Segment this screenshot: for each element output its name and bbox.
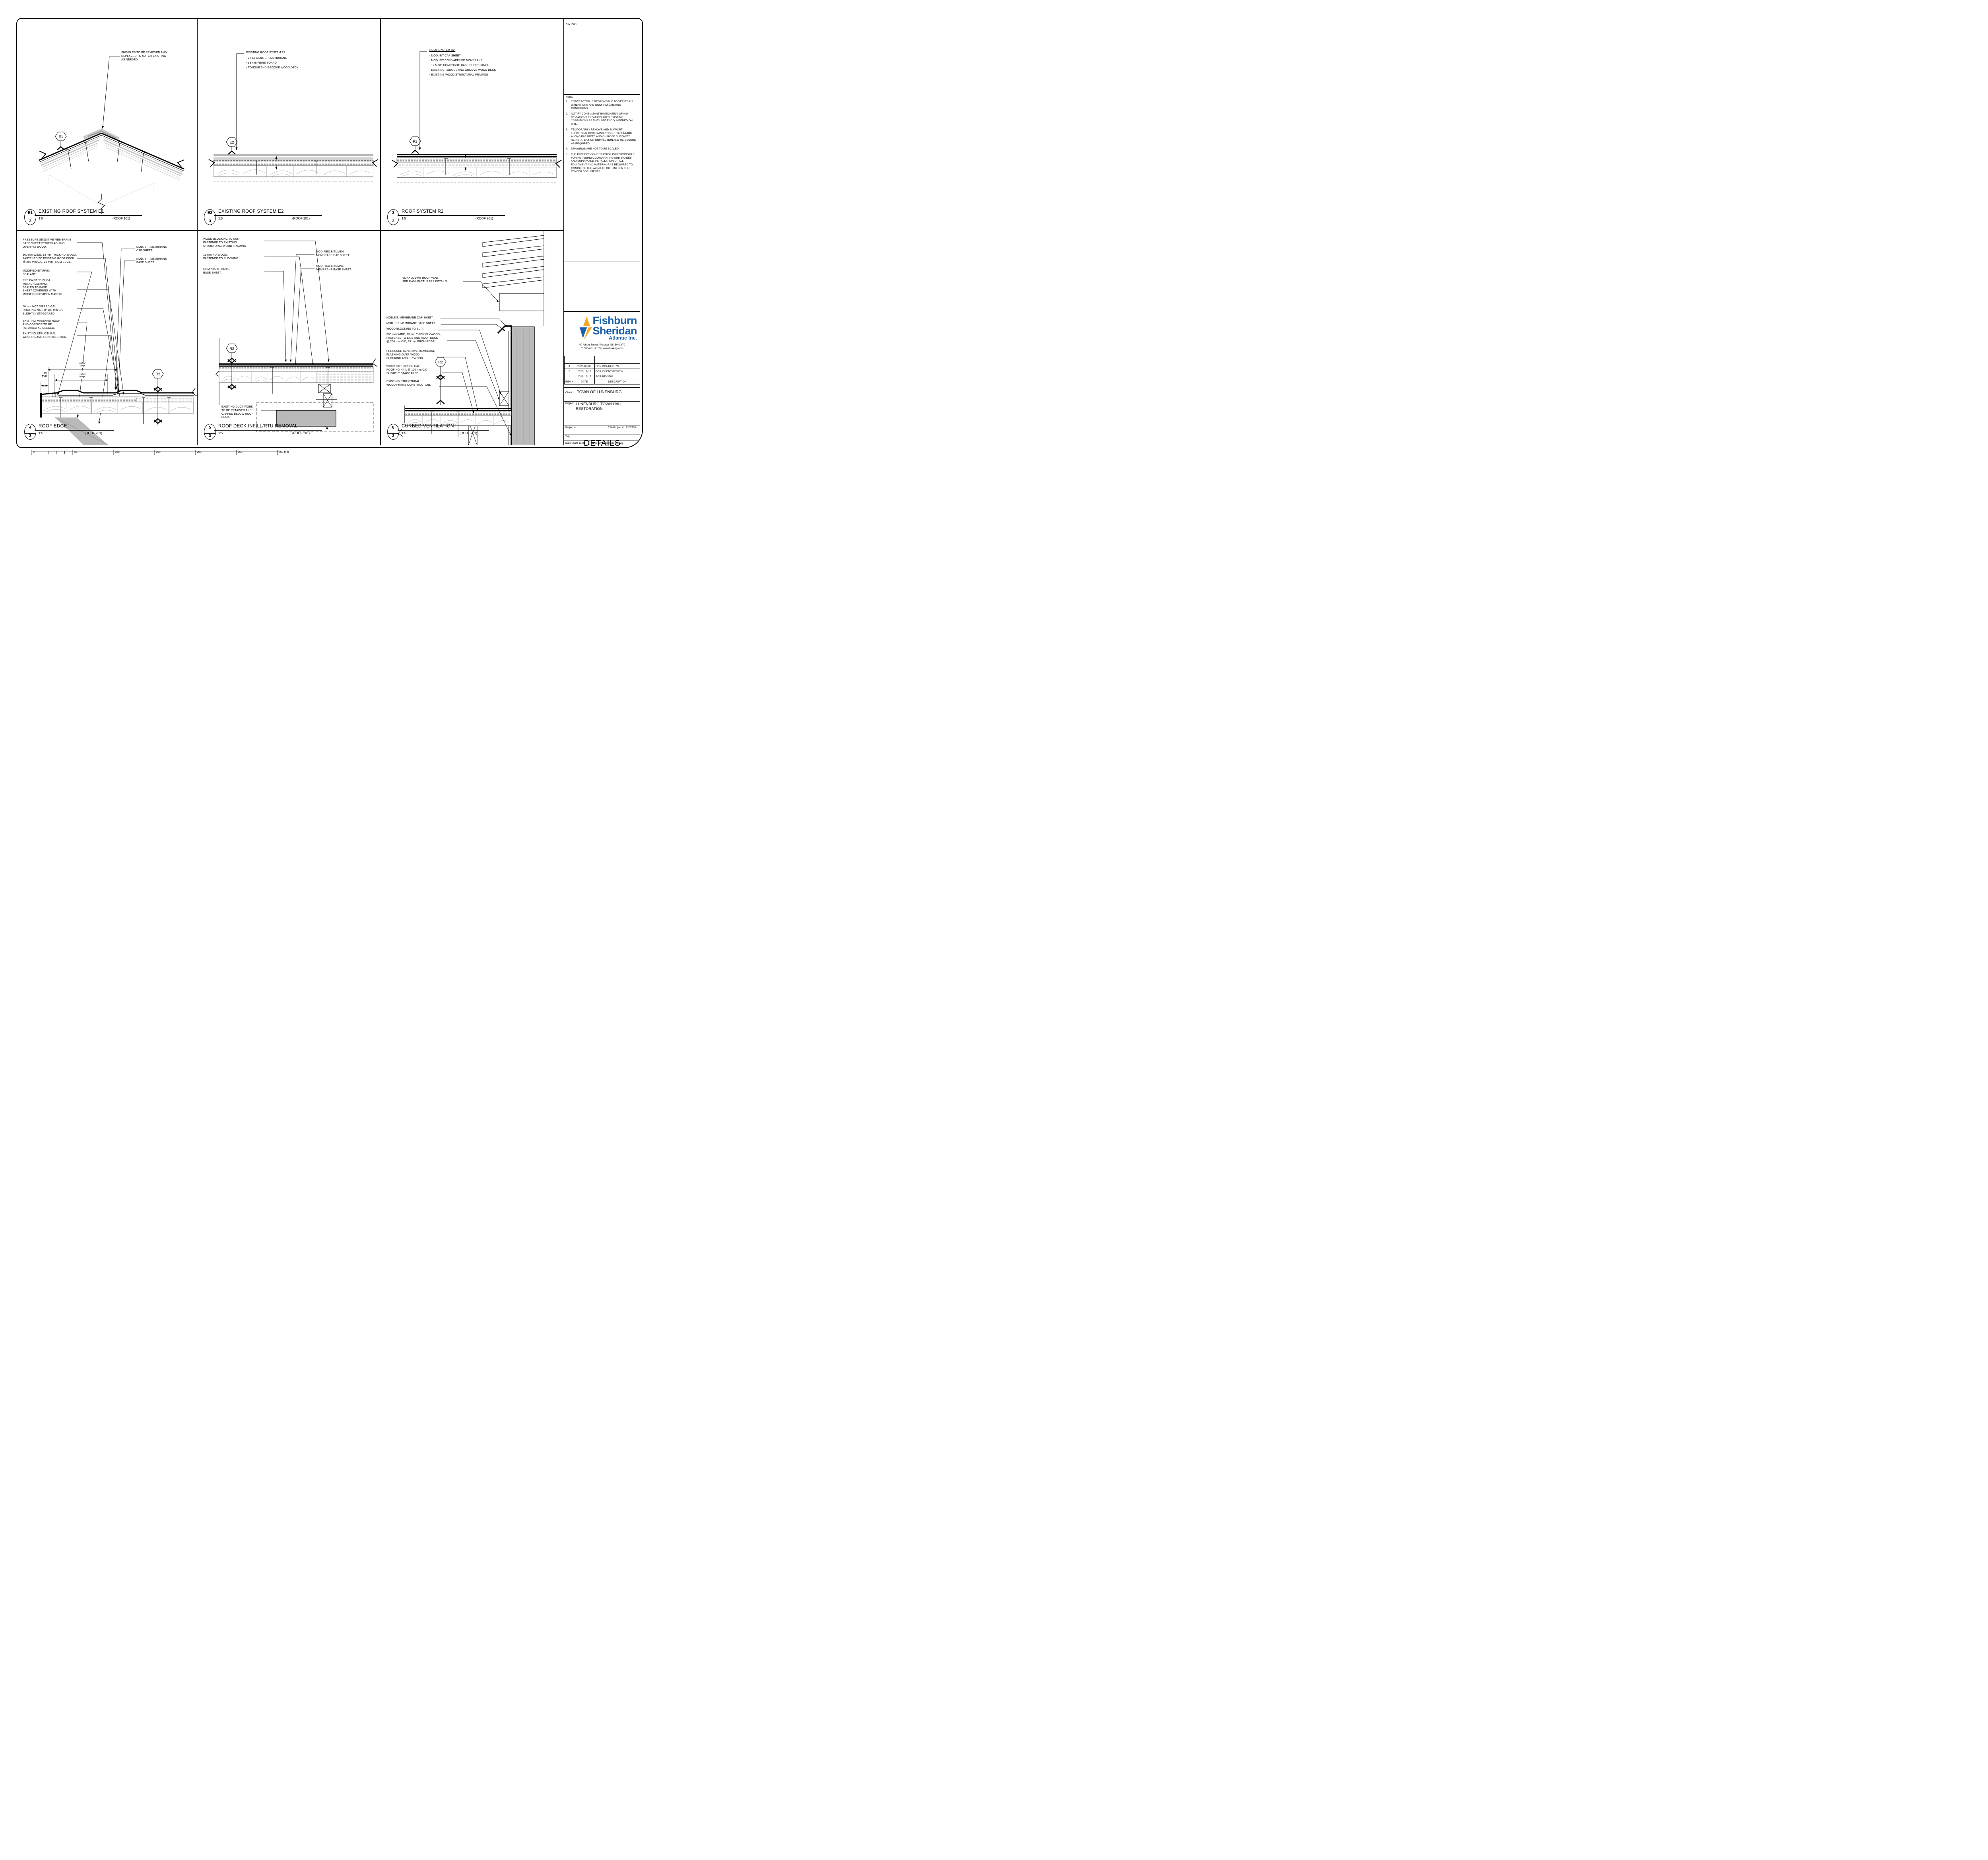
logo-word-3: Atlantic Inc. [592, 336, 637, 341]
rev-num: 2 [565, 369, 574, 374]
callout: MOD. BIT. MEMBRANE BASE SHEET. [386, 322, 442, 326]
callout: WOOD BLOCKING TO SUIT. [386, 328, 438, 331]
detail-ref: (ROOF 201) [476, 217, 493, 220]
detail-drawing-e2: E2 [197, 19, 380, 231]
fsa-project-label: FSA Project #: [608, 426, 624, 429]
callout-duct: EXISTING DUCT WORK TO BE RETAINED AND CA… [221, 406, 269, 419]
callout: MODIFIED BITUMNE MEMBRANE BASE SHEET. [316, 265, 368, 272]
scale-tick-label: 250 [238, 451, 243, 454]
detail-name: ROOF SYSTEM R2 [398, 208, 505, 215]
firm-address: 40 Albert Street, Windsor NS B0N 2T0 [564, 343, 640, 347]
drawing-sheet: E1 SHINGLES TO BE REMOVED AND REPLACED T… [0, 0, 658, 465]
detail-scale: 1:5 [39, 217, 43, 220]
callout: 300 mm WIDE, 13 mm THICK PLYWOOD, FASTEN… [386, 333, 447, 344]
callout: 19 mm PLYWOOD, FASTENED TO BLOCKING. [203, 254, 263, 261]
detail-panel-infill: R2 WOOD BLOCKING TO SUIT, FASTENED TO EX… [197, 231, 380, 445]
callout-r2-item: - 12.5 mm COMPOSITE BASE SHEET PANEL. [429, 64, 525, 68]
scale-tick-label: 150 [156, 451, 161, 454]
rev-date: 2023-12-15 [574, 374, 595, 379]
tag-r2: R2 [410, 137, 421, 153]
key-plan-box: Key Plan: [564, 19, 640, 95]
callout: MODIFIED BITUMEN MEMBRANE CAP SHEET. [316, 250, 368, 258]
callout: PRESSURE SENSITIVE MEMBRANE BASE SHEET S… [23, 239, 77, 249]
callout-shingles: SHINGLES TO BE REMOVED AND REPLACED TO M… [121, 51, 193, 62]
detail-title-roof-edge: 4 3 ROOF EDGE 1:5 (ROOF 201) [24, 423, 114, 440]
callout: 50 mm HOT DIPPED GAL. ROOFING NAIL @ 100… [386, 365, 442, 375]
callout-vent: VMAX 201-MB ROOF VENT. SEE MANUFACTURERS… [402, 277, 462, 284]
rev-date: 2023-12-19 [574, 369, 595, 374]
detail-ref: (ROOF 201) [292, 217, 310, 220]
rev-num: 3 [565, 364, 574, 369]
client-label: Client: [565, 391, 573, 394]
svg-text:E1: E1 [58, 135, 63, 139]
callout: 50 mm HOT DIPPED GAL. ROOFING NAIL @ 100… [23, 305, 77, 316]
callout: 300 mm WIDE, 13 mm THICK PLYWOOD, FASTEN… [23, 254, 78, 264]
date-cell: Date: 2023-11-28 [564, 441, 590, 445]
detail-panel-e2: E2 EXISTING ROOF SYSTEM E2: - 2-PLY MOD.… [197, 19, 380, 231]
detail-scale: 1:5 [402, 217, 406, 220]
callout-r2-item: - MOD. BIT CAP SHEET [429, 54, 525, 58]
dim-300: ±300 TYP. [72, 362, 93, 368]
detail-name: ROOF EDGE [35, 423, 114, 430]
tag-e2: E2 [226, 138, 237, 154]
rev-desc: FOR 99% REVIEW [595, 364, 640, 369]
detail-scale: 1:5 [402, 431, 406, 435]
svg-text:R2: R2 [155, 372, 160, 376]
detail-name: EXISTING ROOF SYSTEM E1 [35, 208, 142, 215]
svg-text:R2: R2 [413, 140, 417, 144]
svg-text:E2: E2 [229, 140, 234, 144]
project-number-label: Project #: [565, 426, 576, 429]
callout-e2-item: - 13 mm FIBRE BOARD [246, 62, 338, 65]
callout-r2-item: - EXISTING WOOD STRUCTURAL FRAMING [429, 74, 525, 77]
callout: EXISTING MANSARD ROOF AND CORNICE TO BE … [23, 320, 77, 330]
detail-name: EXISTING ROOF SYSTEM E2 [214, 208, 322, 215]
detail-scale: 1:5 [39, 431, 43, 435]
detail-panel-r2: R2 ROOF SYSTEM R2: - MOD. BIT CAP SHEET … [380, 19, 563, 231]
title-label: Title: [565, 435, 571, 438]
detail-ref: (ROOF 101) [113, 217, 130, 220]
detail-title-vent: 6 3 CURBED VENTILATION 1:5 (ROOF 201) [387, 423, 489, 440]
file-name-cell: 22057DA-Drawings-01.dwg [590, 442, 625, 445]
scale-tick-label: 300 mm [279, 451, 289, 454]
note-item: 1. CONTRACTOR IS RESPONSIBLE TO VERIFY A… [566, 100, 639, 111]
callout: PRE PAINTED 22 GA. METAL FLASHING, SEALE… [23, 279, 77, 297]
key-plan-label: Key Plan: [566, 23, 577, 25]
rev-header: DATE [574, 379, 595, 384]
callout: WOOD BLOCKING TO SUIT, FASTENED TO EXIST… [203, 238, 263, 248]
callout: PRESSURE SENSITIVE MEMBRANE FLASHING OVE… [386, 350, 443, 360]
rev-desc: FOR CLIENT REVIEW [595, 369, 640, 374]
firm-phone: T: 506-651-9159 | www.fsaeng.com [564, 347, 640, 350]
scale-tick-label: 100 [115, 451, 120, 454]
project-label: Project: [565, 402, 574, 405]
detail-panel-e1: E1 SHINGLES TO BE REMOVED AND REPLACED T… [17, 19, 197, 231]
scale-tick-label: 0 [33, 451, 35, 454]
tag-e1: E1 [55, 132, 66, 150]
graphic-scale-bar: 0 50 100 150 200 250 300 mm [29, 449, 307, 460]
dim-250: ±250 TYP. [72, 373, 93, 379]
detail-drawing-e1: E1 [17, 19, 197, 231]
scale-tick-label: 200 [197, 451, 202, 454]
note-item: 5. THE PROJECT CONSTRUCTOR IS RESPONSIBL… [566, 153, 639, 174]
callout-e2-item: - TONGUE AND GROOVE WOOD DECK [246, 66, 338, 70]
callout-r2-heading: ROOF SYSTEM R2: [429, 49, 517, 52]
revision-table: 3 2025-08-06 FOR 99% REVIEW 2 2023-12-19… [564, 356, 640, 387]
detail-title-r2: 3 3 ROOF SYSTEM R2 1:5 (ROOF 201) [387, 208, 505, 225]
rev-num: 1 [565, 374, 574, 379]
detail-panel-roof-edge: R2 PRESSURE SENSITIVE MEMBRANE BASE SHEE… [17, 231, 197, 445]
rev-desc: FOR REVIEW [595, 374, 640, 379]
sheet-border: E1 SHINGLES TO BE REMOVED AND REPLACED T… [16, 18, 643, 448]
rev-date: 2025-08-06 [574, 364, 595, 369]
detail-panel-vent: R2 VMAX 201-MB ROOF VENT. SEE MANUFACTUR… [380, 231, 563, 445]
callout-r2-item: - EXISTING TONGUE AND GROOVE WOOD DECK [429, 69, 525, 72]
logo-box: Fishburn Sheridan Atlantic Inc. 40 Alber… [564, 312, 640, 356]
callout-r2-item: - MOD. BIT COLD APPLIED MEMBRANE [429, 59, 525, 63]
project-row: Project: LUNENBURG TOWN HALL RESTORATION [564, 401, 640, 413]
rev-header: DESCRIPTION [595, 379, 640, 384]
callout: MOD. BIT. MEMBRANE BASE SHEET. [136, 258, 184, 265]
fsa-project-value: 22057DA [626, 426, 637, 429]
callout: EXISTING STRUCTURAL WOOD FRAME CONSTRUCT… [23, 332, 78, 340]
detail-ref: (ROOF 201) [85, 431, 102, 435]
detail-name: ROOF DECK INFILL/RTU REMOVAL [214, 423, 322, 430]
logo-word-2: Sheridan [592, 326, 637, 336]
note-item: 4. DRAWINGS ARE NOT TO BE SCALED. [566, 148, 639, 151]
dim-25: ±25 TYP. [38, 372, 51, 378]
callout: MOD.BIT. MEMBRANE CAP SHEET. [386, 316, 441, 320]
detail-ref: (ROOF 201) [292, 431, 310, 435]
rev-cell [565, 356, 574, 364]
project-name: LUNENBURG TOWN HALL RESTORATION [576, 402, 639, 412]
client-name: TOWN OF LUNENBURG [577, 390, 622, 394]
note-item: 2. NOTIFY CONSULTANT IMMEDIATELY OF ANY … [566, 113, 639, 126]
client-row: Client: TOWN OF LUNENBURG [564, 387, 640, 394]
detail-scale: 1:5 [218, 217, 223, 220]
project-number-row: Project #: FSA Project #: 22057DA [564, 425, 640, 430]
svg-text:R2: R2 [229, 347, 234, 351]
callout-e2-heading: EXISTING ROOF SYSTEM E2: [246, 51, 334, 55]
callout: EXISTING STRUCTURAL WOOD FRAME CONSTRUCT… [386, 380, 439, 387]
callout-e2-item: - 2-PLY MOD. BIT. MEMBRANE [246, 57, 338, 60]
date-row: Date: 2023-11-28 22057DA-Drawings-01.dwg [564, 441, 640, 445]
callout: MODIFIED BITUMEN SEALANT. [23, 270, 77, 277]
detail-title-e2: E2 3 EXISTING ROOF SYSTEM E2 1:5 (ROOF 2… [204, 208, 322, 225]
svg-text:R2: R2 [438, 360, 443, 364]
note-item: 3. TEMPORARILY REMOVE AND SUPPORT ELECTR… [566, 128, 639, 146]
detail-title-e1: E1 3 EXISTING ROOF SYSTEM E1 1:5 (ROOF 1… [24, 208, 142, 225]
detail-scale: 1:5 [218, 431, 223, 435]
callout: MOD. BIT. MEMBRANE CAP SHEET. [136, 246, 184, 253]
fishburn-sheridan-logo-icon [579, 316, 592, 340]
callout: COMPOSITE PANEL BASE SHEET. [203, 268, 263, 275]
detail-name: CURBED VENTILATION [398, 423, 489, 430]
scale-tick-label: 50 [74, 451, 77, 454]
spare-box [564, 262, 640, 312]
detail-ref: (ROOF 201) [460, 431, 477, 435]
title-block-column: Key Plan: Notes: 1. CONTRACTOR IS RESPON… [563, 19, 640, 445]
notes-box: Notes: 1. CONTRACTOR IS RESPONSIBLE TO V… [564, 95, 640, 262]
logo-word-1: Fishburn [592, 316, 637, 326]
detail-title-infill: 5 3 ROOF DECK INFILL/RTU REMOVAL 1:5 (RO… [204, 423, 322, 440]
rev-header: REV # [565, 379, 574, 384]
notes-label: Notes: [566, 96, 639, 99]
